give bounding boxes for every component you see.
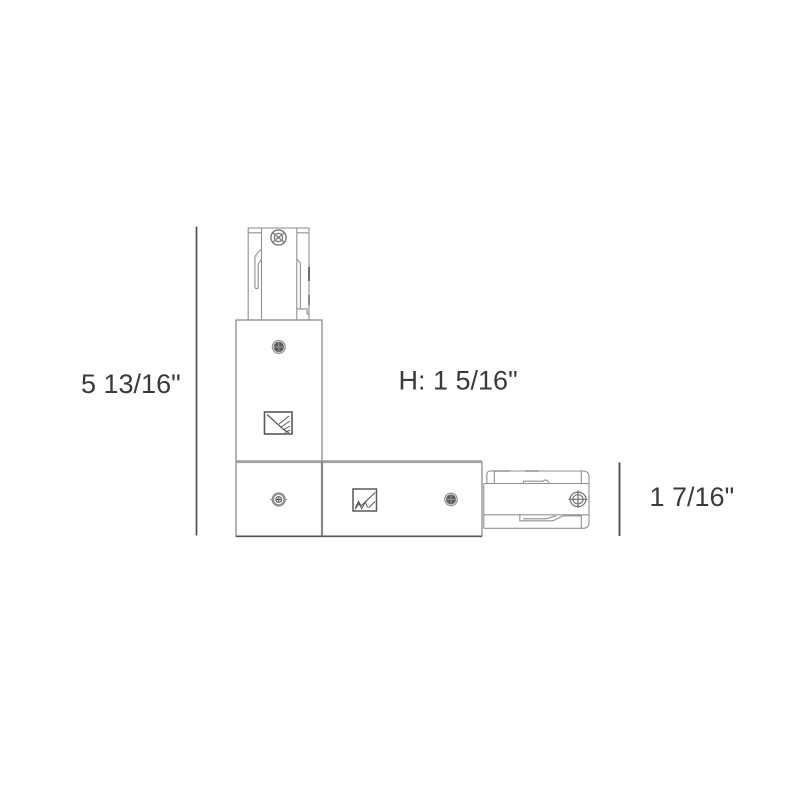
svg-text:1 7/16": 1 7/16" — [650, 482, 735, 512]
svg-text:H: 1 5/16": H: 1 5/16" — [399, 366, 518, 396]
svg-text:5 13/16": 5 13/16" — [81, 369, 181, 399]
